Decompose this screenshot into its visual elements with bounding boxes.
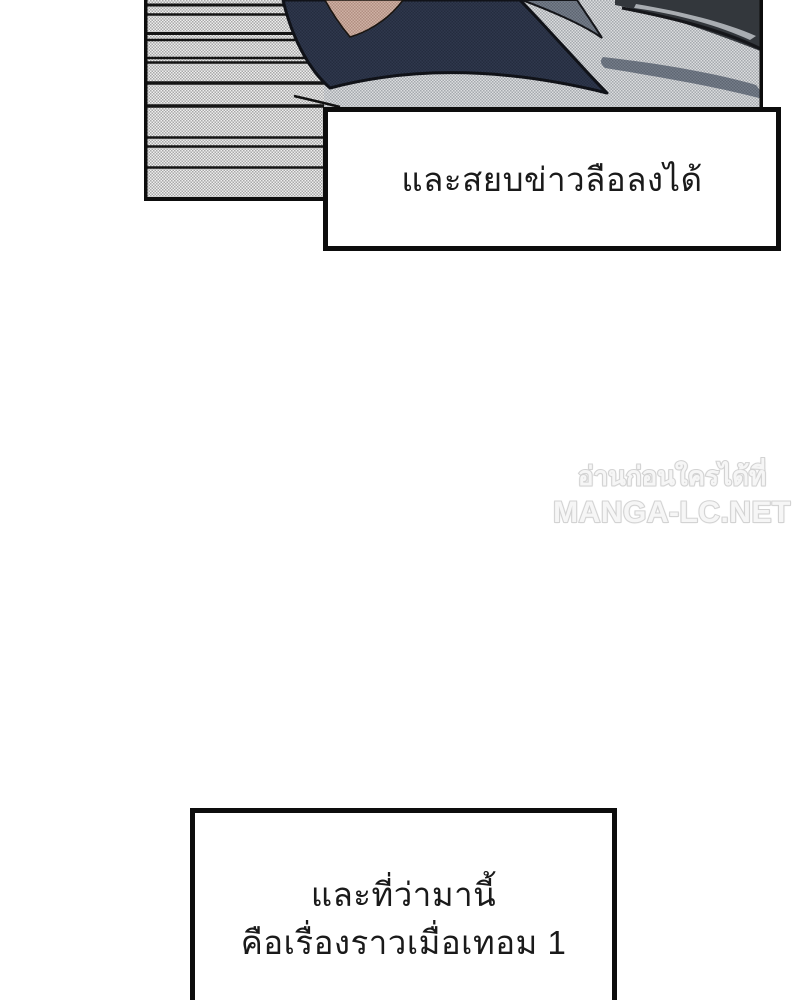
site-watermark: อ่านก่อนใครได้ที่ MANGA-LC.NET — [548, 458, 796, 532]
speech-box-2-line2: คือเรื่องราวเมื่อเทอม 1 — [195, 919, 612, 967]
watermark-site-name: MANGA-LC.NET — [548, 494, 796, 532]
speech-box-1-text: และสยบข่าวลือลงได้ — [401, 153, 702, 206]
watermark-thai-line: อ่านก่อนใครได้ที่ — [548, 458, 796, 494]
speech-box-2: และที่ว่ามานี้ คือเรื่องราวเมื่อเทอม 1 — [190, 808, 617, 1000]
manga-page: และสยบข่าวลือลงได้ อ่านก่อนใครได้ที่ MAN… — [0, 0, 800, 1000]
speech-box-1: และสยบข่าวลือลงได้ — [323, 107, 781, 251]
speech-box-2-line1: และที่ว่ามานี้ — [195, 871, 612, 919]
